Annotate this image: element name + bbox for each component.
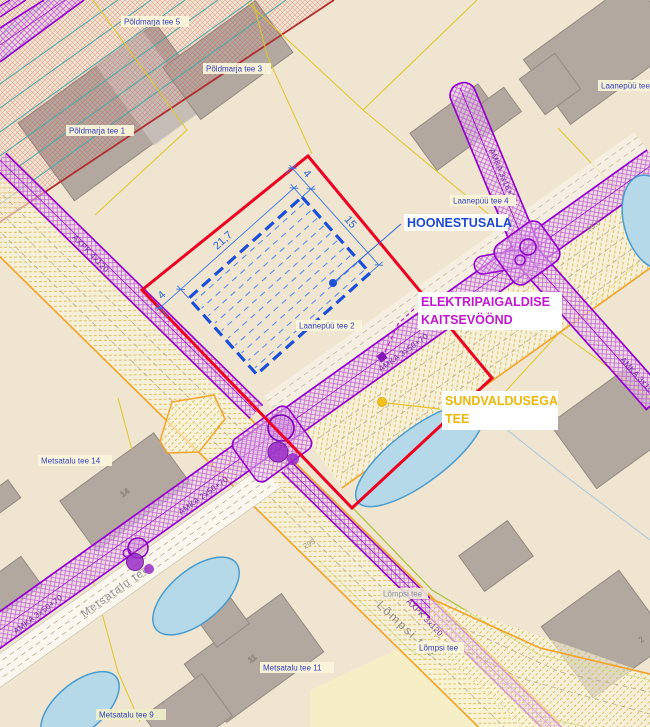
address-text: Metsatalu tee 14: [41, 457, 101, 466]
address-label: Põldmarja tee 3: [203, 63, 271, 74]
address-text: Metsatalu tee 9: [99, 711, 154, 720]
address-text: Metsatalu tee 11: [263, 664, 322, 673]
annotation-text: ELEKTRIPAIGALDISE: [421, 295, 550, 309]
annotation-text: HOONESTUSALA: [407, 216, 512, 230]
annotation-hoonestusala: HOONESTUSALA: [404, 214, 512, 231]
address-text: Põldmarja tee 3: [206, 65, 263, 74]
planning-map[interactable]: 14 11 2: [0, 0, 650, 727]
address-label: Metsatalu tee 14: [38, 455, 112, 466]
annotation-sundvaldus: SUNDVALDUSEGA TEE: [442, 391, 558, 430]
address-text: Laanepüü tee: [601, 82, 650, 91]
annotation-text: TEE: [445, 412, 469, 426]
address-label: Metsatalu tee 11: [260, 662, 334, 673]
map-canvas: 14 11 2: [0, 0, 650, 727]
annotation-text: KAITSEVÖÖND: [421, 312, 513, 327]
pole-symbol: [144, 564, 154, 574]
address-label: Lõmpsi tee: [416, 642, 464, 653]
address-label: Lõmpsi tee: [380, 588, 428, 599]
address-label: Põldmarja tee 5: [121, 16, 189, 27]
address-label: Laanepüü tee 4: [450, 195, 516, 206]
sundvaldus-point: [378, 398, 387, 407]
address-text: Lõmpsi tee: [419, 644, 459, 653]
address-label: Metsatalu tee 9: [96, 709, 166, 720]
address-label: Laanepüü tee 2: [296, 320, 362, 331]
address-label: Põldmarja tee 1: [66, 125, 134, 136]
pole-symbol: [268, 415, 294, 441]
pole-symbol: [268, 442, 288, 462]
address-text: Laanepüü tee 2: [299, 322, 355, 331]
pole-symbol: [287, 453, 299, 465]
annotation-text: SUNDVALDUSEGA: [445, 394, 558, 408]
address-text: Lõmpsi tee: [383, 590, 423, 599]
address-text: Põldmarja tee 1: [69, 127, 126, 136]
address-text: Põldmarja tee 5: [124, 18, 181, 27]
address-label: Laanepüü tee: [598, 80, 650, 91]
address-text: Laanepüü tee 4: [453, 197, 509, 206]
annotation-kaitsevoond: ELEKTRIPAIGALDISE KAITSEVÖÖND: [418, 292, 562, 330]
